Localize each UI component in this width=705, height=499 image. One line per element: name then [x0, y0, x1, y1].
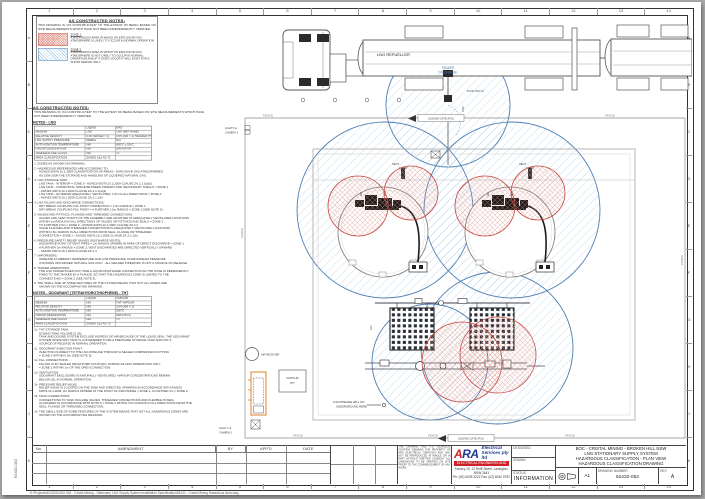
table-cell — [115, 156, 151, 160]
zone1-circle-tank1-b — [384, 166, 438, 220]
signature-fields: DESIGNED DRAWN STATUS INFORMATION — [511, 445, 555, 484]
table-cell: N/A — [115, 139, 151, 143]
table-cell: GROUP DESIGNATION — [35, 148, 85, 152]
border-tick-label: G — [26, 296, 32, 343]
odourant-properties-table: LIQUIDVAPOURMEDIUMN/ATHT VAPOURRELATIVE … — [34, 296, 152, 326]
approvals-grid — [330, 445, 397, 484]
note-line: AS 1596-2008 THE STORAGE AND HANDLING OF… — [34, 174, 209, 178]
table-cell: 600°C ± 50°C — [115, 143, 151, 147]
table-cell: 0.55 (AIR = 1) HEAVIER THAN AIR WHEN COL… — [115, 135, 151, 139]
table-row: MEDIUMLNGLNG (METHANE) — [35, 130, 152, 134]
note-line: SHOWN ON THE ACCOMPANYING DRAWING. — [34, 414, 209, 418]
note-item: 11. ODOURANT INJECTION POINT:INJECTION I… — [34, 347, 209, 358]
note-line: = ZONE 2 WITHIN 0.5m (SEE NOTE 5). — [34, 354, 209, 358]
table-cell: N/A — [85, 314, 115, 318]
as-constructed-legend-panel: AS CONSTRUCTED NOTES: THIS DRAWING IS "A… — [36, 16, 158, 104]
table-cell: N/A — [85, 143, 115, 147]
sheet-size: A1 — [579, 473, 596, 478]
dimension-620: 620 — [369, 325, 373, 330]
lights-camera-label-1: LIGHTS & — [225, 126, 237, 130]
disclaimer-text: THE DRAWING AND ITS TECHNICAL CONTENT RE… — [398, 445, 451, 470]
title-line-4: HAZARDOUS CLASSIFICATION DRAWING — [556, 461, 686, 466]
border-column-labels-bottom: 1234567891011121314 — [26, 484, 692, 490]
fence-label-bottom-2: FENCE — [428, 434, 438, 438]
light-camera-bl-label-1: LIGHT 1 & — [219, 426, 231, 430]
zone1-circle-tank1-a — [328, 176, 388, 236]
sliding-gate-label-top: SLIDING GATE (P/G) — [428, 117, 454, 121]
designed-field: DESIGNED — [512, 445, 555, 458]
note-item: 6. PRESSURE SAFETY RELIEF VALVES (DISCHA… — [34, 239, 209, 253]
table-cell: 200°C — [115, 310, 151, 314]
note-line: CONNECTION = ZONE 2 - AS/NZS 60079.10.1:… — [34, 234, 209, 238]
border-tick-label: 9 — [406, 484, 454, 490]
note-item: 16. THE SMALL SIZE OF SOME FEATURES OF T… — [34, 410, 209, 417]
table-cell: T1 — [115, 152, 151, 156]
table-cell: TEMPERATURE CLASS — [35, 318, 85, 322]
zone2-hatch-swatch — [38, 48, 68, 61]
fence-label-bottom-3: FENCE — [565, 434, 575, 438]
table-cell: ZONES 1&2 AS T1 — [85, 156, 115, 160]
disclaimer-box: THE DRAWING AND ITS TECHNICAL CONTENT RE… — [397, 445, 451, 484]
amendments-header-cell: APP'D — [245, 445, 285, 452]
odourant-heading: NOTES - ODOURANT (TETRAHYDROTHIOPHENE) -… — [33, 292, 209, 296]
lng-properties-table: LIQUIDGASMEDIUMLNGLNG (METHANE)RELATIVE … — [34, 126, 152, 161]
fence-label-left: FENCE — [240, 228, 244, 238]
company-address-2: Ph: (02) 6025 3222 Fax: (02) 6040 9792 — [452, 475, 511, 479]
border-tick-label: 3 — [120, 484, 168, 490]
status-value: INFORMATION — [512, 476, 555, 482]
table-row: TEMPERATURE CLASSN/AT3 — [35, 318, 152, 322]
dimension-3430: 3430 — [461, 106, 465, 112]
lights-camera-label-2: CAMERA 1 — [225, 131, 239, 135]
table-row: LIQUIDGAS — [35, 126, 152, 130]
note-item: 15. TANK CONNECTIONS:CONNECTIONS TO TANK… — [34, 395, 209, 409]
table-cell: TEMPERATURE CLASS — [35, 152, 85, 156]
note-line: DRY BREAK COUPLING FILL POINT = A FURTHE… — [34, 208, 209, 212]
border-tick-label: F — [26, 249, 32, 296]
company-address-1: Factory 10, 12 Reiff Street, Lavington, … — [452, 467, 511, 475]
table-row: LIQUIDVAPOUR — [35, 297, 152, 301]
side-margin-text: 62432-052 — [13, 459, 18, 478]
trailer-tank — [363, 40, 600, 76]
table-cell: 600kPa — [85, 139, 115, 143]
table-cell: MEDIUM — [35, 301, 85, 305]
table-cell: ZONES 1&2 AS T3 — [85, 322, 115, 326]
truck-label: LNG REFUELLER — [377, 52, 410, 57]
table-cell: LNG (METHANE) — [115, 131, 151, 135]
table-cell: GROUP DESIGNATION — [35, 314, 85, 318]
border-row-labels-left: ABCDEFGHJK — [26, 15, 32, 484]
table-row: AUTO-IGNITION TEMPERATUREN/A600°C ± 50°C — [35, 143, 152, 147]
legend-zone2-row: ZONE 2 A HAZARDOUS AREA IN WHICH AN EXPL… — [38, 48, 156, 64]
note-item: 3. LNG STORAGE TANK:LNG TANK - INTERIOR … — [34, 179, 209, 200]
border-tick-label: C — [26, 108, 32, 155]
border-tick-label: 8 — [358, 484, 406, 490]
table-row: MEDIUMN/ATHT VAPOUR — [35, 301, 152, 305]
table-cell: LNG — [85, 131, 115, 135]
note-item: 2. HAZARDOUS REFERENCES ARE ACCORDING TO… — [34, 167, 209, 178]
zone1-circle-tank2-a — [455, 176, 515, 236]
table-cell: GAS — [115, 126, 151, 130]
table-cell: AREA CLASSIFICATION — [35, 322, 85, 326]
border-tick-label: 3 — [120, 8, 168, 15]
table-cell: 3.04 (AIR = 1) — [115, 306, 151, 310]
revision-value: A — [659, 474, 686, 480]
zone1-circle-manifold-b — [460, 317, 536, 393]
sliding-gate-label-bottom: SLIDING GATE (P/G) — [458, 437, 484, 441]
amendments-header-cell: DATE — [286, 445, 330, 452]
table-cell: LIQUID — [85, 126, 115, 130]
table-cell: N/A — [85, 148, 115, 152]
table-row: AREA CLASSIFICATIONZONES 1&2 AS T1 — [35, 156, 152, 160]
amendments-header-cell: BY — [215, 445, 246, 452]
table-cell: VAPOUR — [115, 297, 151, 301]
border-tick-label: 7 — [311, 484, 359, 490]
note-line: 60079.10.1:2009; 2m RADIUS SPHERE AT THE… — [34, 390, 209, 394]
status-field: STATUS INFORMATION — [512, 471, 555, 484]
company-logo-block: ARA Electrical Services pty ltd ELECTRIC… — [451, 445, 511, 484]
fence-label-right: FENCE — [680, 255, 684, 265]
note-line: - AS/NZS 60079.10.1:2009 CLAUSE ZA.2.1.1… — [34, 196, 209, 200]
notes-column: AS CONSTRUCTED NOTES: THIS DRAWING IS "A… — [33, 104, 209, 443]
note-line: SHOWN ON THE ACCOMPANYING DRAWING. — [34, 285, 209, 289]
amendments-header-cell: AMENDMENT — [46, 445, 215, 452]
table-row: GROUP DESIGNATIONN/AGROUP IIA — [35, 147, 152, 151]
table-row: GROUP DESIGNATIONN/AGROUP IIA — [35, 313, 152, 317]
border-tick-label: 4 — [168, 484, 216, 490]
note-item: 7. VAPORISERS:OPERATE AT AMBIENT TEMPERA… — [34, 254, 209, 265]
note-line: - AS/NZS 60079.10.1:2009 CLAUSE ZA.2.3 — [34, 250, 209, 254]
note-line: CONNECTIONS = ZONE 2 (SEE NOTE 5). — [34, 277, 209, 281]
air-receiver — [246, 348, 259, 361]
lng-notes-list: 1. ZONES AS SHOWN ON DRAWING.2. HAZARDOU… — [33, 162, 209, 289]
notes-body: THIS DRAWING IS "AS CONSTRUCTED" TO THE … — [34, 111, 208, 118]
note-line: BELOW LEL IN NORMAL OPERATION. — [34, 378, 209, 382]
table-row: AREA CLASSIFICATIONZONES 1&2 AS T3 — [35, 322, 152, 326]
border-tick-label: 1 — [26, 484, 73, 490]
note-item: 10. THT STORAGE TANK:DOSING TANK VOLUME … — [34, 328, 209, 346]
fence-label-top-right: FENCE — [605, 114, 615, 118]
zone1-hatch-swatch — [38, 33, 68, 46]
drawing-number-cell: DRAWING NUMBER 62432-052 — [596, 468, 659, 484]
table-cell: AUTO-IGNITION TEMPERATURE — [35, 310, 85, 314]
note-line: CONTAINS ODOURISED NATURAL GAS ONLY - AL… — [34, 261, 209, 265]
drawing-number: 62432-052 — [597, 475, 659, 480]
note-line: 1. ZONES AS SHOWN ON DRAWING. — [34, 162, 209, 166]
table-cell: GROUP IIA — [115, 148, 151, 152]
zone1-circle-tank2-b — [511, 166, 565, 220]
table-cell: LIQUID — [85, 297, 115, 301]
table-cell: N/A — [85, 301, 115, 305]
border-tick-label: 12 — [549, 484, 597, 490]
air-receiver-label: AIR RECEIVER — [261, 353, 279, 357]
logo-tagline-2: Services pty ltd — [482, 451, 509, 461]
note-item: 13. VENTILATION:ODOURANT ENCLOSURE IS NA… — [34, 371, 209, 382]
pipeline-note-2: UNDERGROUND HERE — [336, 405, 367, 409]
bund-depth-label: BUND DEPTH — [467, 89, 484, 93]
note-item: 9. THE SMALL SIZE OF SOME FEATURES OF TH… — [34, 282, 209, 289]
fence-label-top-left: FENCE — [263, 114, 273, 118]
table-row: LNG SUPPLY PRESSURE600kPaN/A — [35, 139, 152, 143]
table-cell — [35, 126, 85, 130]
notes-heading: AS CONSTRUCTED NOTES: — [33, 106, 209, 110]
table-cell: THT VAPOUR — [115, 301, 151, 305]
fence-label-bottom-1: FENCE — [293, 434, 303, 438]
projection-symbol-cell — [556, 468, 578, 484]
ancillary-equipment: AIR RECEIVER VAPOUR PIT LNG PIPELINE WIL… — [246, 348, 386, 430]
tanker-discharge-label-1: TANKER — [442, 66, 455, 70]
border-tick-label: A — [26, 15, 32, 61]
note-item: 4. LNG FILLING AND DISCHARGE CONNECTIONS… — [34, 201, 209, 212]
table-cell — [35, 297, 85, 301]
border-tick-label: H — [26, 343, 32, 390]
table-cell: N/A — [85, 152, 115, 156]
border-tick-label: 11 — [501, 484, 549, 490]
vent-label-tank2: VENT — [519, 162, 527, 166]
light-camera-bl-label-2: CAMERA 1 — [219, 431, 233, 435]
note-line: SOURCE OF RELEASE IN NORMAL OPERATION. — [34, 342, 209, 346]
table-row: TEMPERATURE CLASSN/AT1 — [35, 151, 152, 155]
amendments-header-cell: No. — [32, 445, 46, 452]
note-line: SEAL, FLANGE OR THREADED CONNECTION. — [34, 405, 209, 409]
border-tick-label: 2 — [73, 484, 121, 490]
border-tick-label: 4 — [168, 8, 216, 15]
table-cell: MEDIUM — [35, 131, 85, 135]
table-cell: N/A — [85, 310, 115, 314]
table-cell: N/A — [85, 306, 115, 310]
table-cell: LNG SUPPLY PRESSURE — [35, 139, 85, 143]
note-item: 14. PRESSURE RELIEF VALVE:RELIEF VALVE I… — [34, 383, 209, 394]
note-line: = ZONE 1 WITHIN 1m OF THE OPEN CONNECTIO… — [34, 366, 209, 370]
legend-zone1-row: ZONE 1 A HAZARDOUS AREA IN WHICH AN EXPL… — [38, 33, 156, 46]
note-item: 5. VALVES AND FITTINGS, FLANGED AND THRE… — [34, 213, 209, 238]
logo-subtitle-bar: ELECTRICAL ENGINEERS AND CONSULTANTS — [454, 461, 509, 466]
vapour-pit-label-2: PIT — [290, 381, 295, 385]
file-path-text: K:\Projects\62432\62432-052 - Cristal Mi… — [30, 491, 238, 495]
table-cell: AREA CLASSIFICATION — [35, 156, 85, 160]
ara-logo: ARA — [454, 448, 479, 460]
pipeline-note-1: LNG PIPELINE WILL GO — [333, 400, 365, 404]
trailer-wheels — [405, 26, 443, 38]
table-cell: RELATIVE DENSITY — [35, 135, 85, 139]
tanker-discharge-label-2: DISCHARGE — [439, 71, 458, 75]
table-row: RELATIVE DENSITY0.45 (WATER = 1)0.55 (AI… — [35, 134, 152, 138]
table-cell — [115, 322, 151, 326]
table-row: RELATIVE DENSITYN/A3.04 (AIR = 1) — [35, 305, 152, 309]
border-tick-label: D — [26, 155, 32, 202]
sheet-size-cell: A1 — [578, 468, 596, 484]
truck-coupling — [330, 54, 346, 82]
drawing-sheet: 1234567891011121314 1234567891011121314 … — [0, 0, 705, 499]
table-cell: AUTO-IGNITION TEMPERATURE — [35, 143, 85, 147]
table-cell: N/A — [85, 318, 115, 322]
zone2-description: A HAZARDOUS AREA IN WHICH AN EXPLOSIVE G… — [71, 52, 156, 65]
table-cell: RELATIVE DENSITY — [35, 306, 85, 310]
border-tick-label: 14 — [644, 484, 692, 490]
drawing-title: BOC - CRISTAL MINING - BROKEN HILL NSW L… — [556, 445, 686, 468]
border-tick-label: E — [26, 202, 32, 249]
second-trailer-tank — [611, 39, 692, 76]
zone1-description: A HAZARDOUS AREA IN WHICH AN EXPLOSIVE G… — [71, 37, 156, 44]
note-item: 12. FILL CONNECTIONS:FILLING IS BY SEALE… — [34, 359, 209, 370]
border-tick-label: 13 — [597, 484, 645, 490]
title-and-number-block: BOC - CRISTAL MINING - BROKEN HILL NSW L… — [555, 445, 686, 484]
table-cell: GROUP IIA — [115, 314, 151, 318]
plan-view-drawing: LNG REFUELLER — [215, 10, 692, 444]
table-cell: 0.45 (WATER = 1) — [85, 135, 115, 139]
drawn-field: DRAWN — [512, 458, 555, 471]
note-item: 8. TANKER OPERATIONS:THE LNG TANKER DOES… — [34, 266, 209, 280]
border-tick-label: 5 — [216, 484, 264, 490]
odourant-notes-list: 10. THT STORAGE TANK:DOSING TANK VOLUME … — [33, 328, 209, 417]
table-row: AUTO-IGNITION TEMPERATUREN/A200°C — [35, 309, 152, 313]
as-constructed-heading: AS CONSTRUCTED NOTES: — [37, 19, 157, 23]
vent-label-tank1: VENT — [392, 162, 400, 166]
gate-arrow-bottom — [438, 435, 446, 442]
vapour-pit-label-1: VAPOUR — [286, 376, 299, 380]
border-tick-label: 1 — [26, 8, 73, 15]
as-constructed-body: THIS DRAWING IS "AS CONSTRUCTED" TO THE … — [38, 24, 156, 31]
table-cell: T3 — [115, 318, 151, 322]
note-item: 1. ZONES AS SHOWN ON DRAWING. — [34, 162, 209, 166]
border-tick-label: 6 — [263, 484, 311, 490]
amendments-table: No.AMENDMENTBYAPP'DDATE — [32, 445, 330, 484]
border-tick-label: 10 — [454, 484, 502, 490]
notes-lng-heading: NOTES - LNG — [33, 121, 209, 125]
revision-cell: REV A — [658, 468, 686, 484]
border-tick-label: J — [26, 390, 32, 437]
border-tick-label: 2 — [73, 8, 121, 15]
third-angle-projection-icon — [557, 470, 577, 483]
border-tick-label: B — [26, 61, 32, 108]
